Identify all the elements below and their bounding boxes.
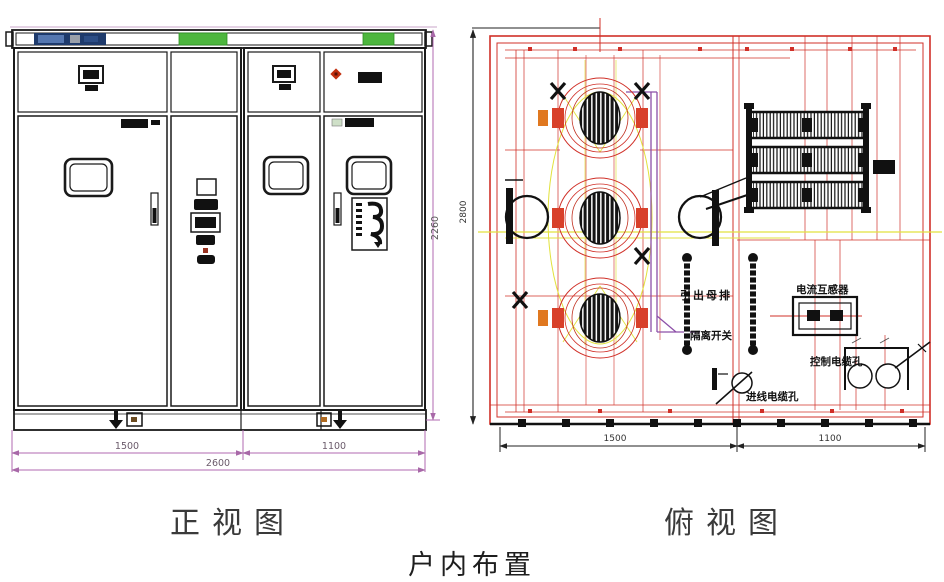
control-cable-hole-label: 控制电缆孔: [810, 355, 863, 368]
door-window: [347, 157, 391, 194]
top-dimensions: [500, 427, 925, 452]
top-view-base: [490, 419, 930, 427]
alarm-lamp-icon: [330, 68, 341, 79]
front-dim-left-label: 1500: [115, 441, 139, 452]
construction-lines-yellow: [478, 60, 942, 345]
front-view-drawing: 1500 1100 2600 2260: [6, 27, 441, 472]
front-dim-total-label: 2600: [206, 458, 230, 469]
filter-bank: [744, 103, 895, 213]
top-dim-left-label: 1500: [604, 434, 627, 444]
front-view-caption: 正视图: [148, 498, 318, 542]
incoming-cable-hole-label: 进线电缆孔: [746, 390, 799, 403]
current-transformer-label: 电流互感器: [796, 283, 849, 296]
cad-drawing: 1500 1100 2600 2260 2800: [0, 0, 944, 582]
disconnector-label: 隔离开关: [690, 329, 732, 342]
instrument-stack: [191, 179, 220, 264]
nameplate: [34, 33, 106, 45]
reactor-coils: [538, 78, 648, 358]
busbar-label: 引出母排: [680, 288, 732, 302]
top-dim-right-label: 1100: [819, 434, 842, 444]
reactor-coil: [552, 178, 648, 258]
door-window: [264, 157, 308, 194]
indicator-green-right: [363, 33, 394, 45]
meter-icon: [273, 66, 295, 90]
top-view-caption: 俯视图: [642, 498, 812, 542]
front-dim-right-label: 1100: [322, 441, 346, 452]
base-strip: [14, 410, 426, 430]
cabinet-left: [14, 48, 241, 410]
mimic-panel: [352, 198, 387, 250]
drawing-canvas: 1500 1100 2600 2260 2800: [0, 0, 944, 582]
page-title: 户内布置: [372, 543, 572, 582]
door-handle: [151, 193, 158, 225]
top-view-drawing: 2800: [459, 18, 942, 452]
cooling-fan-left: [505, 180, 548, 244]
meter-icon: [79, 66, 103, 91]
front-dim-height-label: 2260: [430, 216, 441, 240]
door-handle: [334, 193, 341, 225]
cabinet-right: [244, 48, 425, 410]
door-window: [65, 159, 112, 196]
indicator-green-left: [179, 33, 227, 45]
top-dim-depth-label: 2800: [459, 200, 469, 223]
